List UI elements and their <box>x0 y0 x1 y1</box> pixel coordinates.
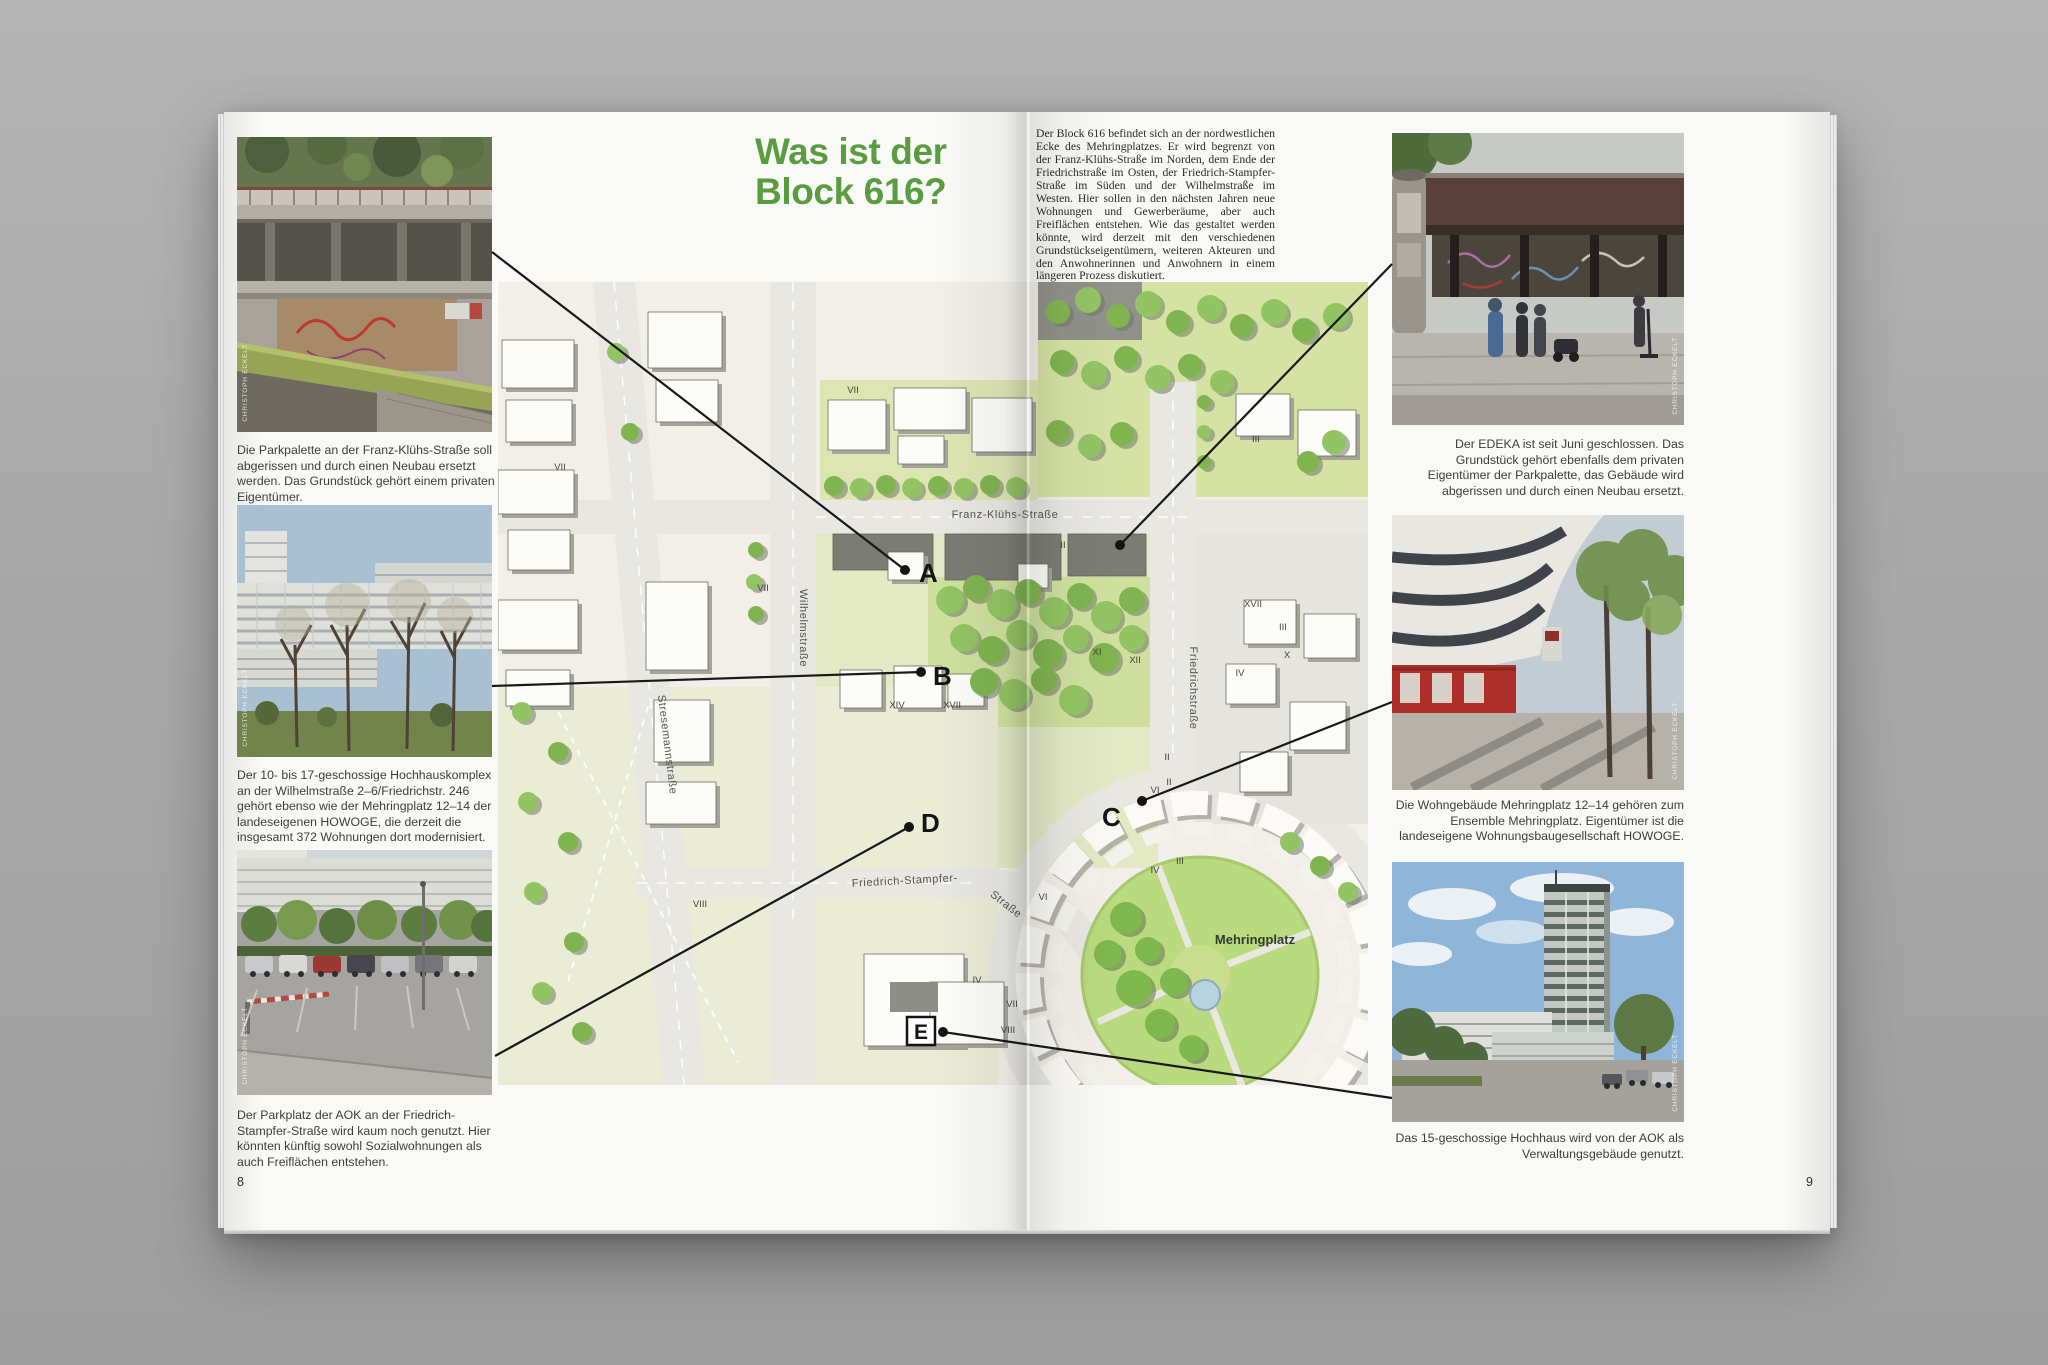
desk-background: CHRISTOPH ECKELT Die Parkpalette an der … <box>0 0 2048 1365</box>
caption-aok-parkplatz: Der Parkplatz der AOK an der Friedrich-S… <box>237 1108 503 1170</box>
photo-credit: CHRISTOPH ECKELT <box>1672 1034 1679 1112</box>
page-shading-right <box>1784 112 1830 1230</box>
photo-hochhaus-art <box>237 505 492 757</box>
photo-credit: CHRISTOPH ECKELT <box>242 344 249 422</box>
magazine-spread: CHRISTOPH ECKELT Die Parkpalette an der … <box>224 112 1830 1230</box>
caption-hochhauskomplex: Der 10- bis 17-geschossige Hochhauskompl… <box>237 768 503 846</box>
building-numeral: X <box>1284 650 1291 661</box>
caption-edeka: Der EDEKA ist seit Juni geschlossen. Das… <box>1390 437 1684 499</box>
street-label: Wilhelmstraße <box>797 589 809 667</box>
page-stack-edge-left <box>218 114 224 1228</box>
intro-paragraph: Der Block 616 befindet sich an der nordw… <box>1036 128 1275 283</box>
photo-aok-hochhaus: CHRISTOPH ECKELT <box>1392 862 1684 1122</box>
building-numeral: II <box>1166 777 1171 788</box>
building-numeral: VIII <box>693 899 707 910</box>
caption-parkpalette: Die Parkpalette an der Franz-Klühs-Straß… <box>237 443 499 505</box>
building-numeral: VII <box>554 462 566 473</box>
building-numeral: VI <box>1039 892 1048 903</box>
building-numeral: III <box>1279 622 1287 633</box>
page-number-right: 9 <box>1806 1175 1813 1189</box>
street-label: Franz-Klühs-Straße <box>952 509 1059 521</box>
building-numeral: XVII <box>943 700 961 711</box>
photo-parkpalette-art <box>237 137 492 432</box>
page-title-line2: Block 616? <box>755 171 946 212</box>
photo-edeka: CHRISTOPH ECKELT <box>1392 133 1684 425</box>
street-label: Friedrichstraße <box>1187 647 1199 730</box>
photo-mehringplatz-wohngebaeude: CHRISTOPH ECKELT <box>1392 515 1684 790</box>
building-numeral: XII <box>1129 655 1141 666</box>
page-title: Was ist der Block 616? <box>755 132 1015 212</box>
photo-edeka-art <box>1392 133 1684 425</box>
photo-parkplatz-art <box>237 850 492 1095</box>
building-numeral: VIII <box>1001 1025 1015 1036</box>
page-stack-edge-bottom <box>224 1230 1830 1234</box>
building-numeral: XIV <box>889 700 905 711</box>
building-numeral: II <box>1060 540 1065 551</box>
photo-credit: CHRISTOPH ECKELT <box>1672 702 1679 780</box>
photo-credit: CHRISTOPH ECKELT <box>1672 337 1679 415</box>
photo-ensemble-art <box>1392 515 1684 790</box>
page-number-left: 8 <box>237 1175 244 1189</box>
photo-aok-tower-art <box>1392 862 1684 1122</box>
building-numeral: XI <box>1093 647 1102 658</box>
photo-hochhauskomplex: CHRISTOPH ECKELT <box>237 505 492 757</box>
building-numeral: IV <box>1236 668 1246 679</box>
building-numeral: VII <box>847 385 859 396</box>
photo-credit: CHRISTOPH ECKELT <box>242 1007 249 1085</box>
photo-parkpalette: CHRISTOPH ECKELT <box>237 137 492 432</box>
building-numeral: VII <box>1006 999 1018 1010</box>
building-numeral: IV <box>973 975 983 986</box>
building-numeral: II <box>1164 752 1169 763</box>
block-616-map: Franz-Klühs-StraßeWilhelmstraßeFriedrich… <box>498 282 1368 1085</box>
building-numeral: III <box>1176 856 1184 867</box>
building-numeral: III <box>1252 434 1260 445</box>
caption-aok-hochhaus: Das 15-geschossige Hochhaus wird von der… <box>1390 1131 1684 1162</box>
building-numeral: VII <box>757 583 769 594</box>
page-stack-edge-right <box>1830 115 1837 1228</box>
place-label: Mehringplatz <box>1215 932 1296 947</box>
photo-aok-parkplatz: CHRISTOPH ECKELT <box>237 850 492 1095</box>
photo-credit: CHRISTOPH ECKELT <box>242 669 249 747</box>
block-616-map-art: Franz-Klühs-StraßeWilhelmstraßeFriedrich… <box>498 282 1368 1085</box>
building-numeral: XVII <box>1244 599 1262 610</box>
page-title-line1: Was ist der <box>755 131 947 172</box>
building-numeral: VI <box>1151 785 1160 796</box>
building-numeral: IV <box>1151 865 1161 876</box>
caption-mehringplatz-wohngebaeude: Die Wohngebäude Mehringplatz 12–14 gehör… <box>1390 798 1684 845</box>
